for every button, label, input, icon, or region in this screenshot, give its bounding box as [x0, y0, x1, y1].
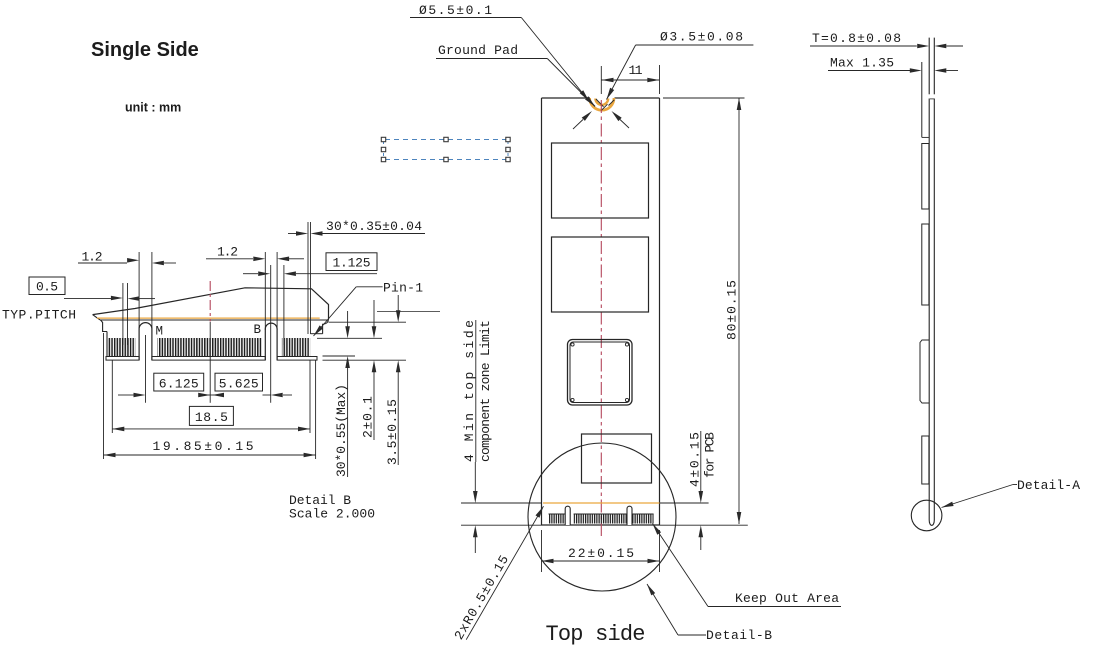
svg-text:18.5: 18.5	[195, 410, 228, 425]
svg-text:30*0.55(Max): 30*0.55(Max)	[334, 384, 349, 477]
svg-text:Detail-A: Detail-A	[1017, 478, 1080, 493]
svg-text:unit : mm: unit : mm	[125, 101, 181, 115]
svg-text:1.2: 1.2	[82, 250, 103, 265]
svg-text:5.625: 5.625	[219, 377, 259, 392]
svg-text:1.125: 1.125	[333, 256, 371, 271]
svg-text:Max 1.35: Max 1.35	[830, 56, 894, 71]
svg-text:Ø5.5±0.1: Ø5.5±0.1	[419, 3, 492, 18]
svg-text:2±0.1: 2±0.1	[361, 396, 376, 438]
svg-text:for PCB: for PCB	[703, 432, 718, 478]
svg-text:80±0.15: 80±0.15	[724, 280, 739, 340]
svg-text:30*0.35±0.04: 30*0.35±0.04	[326, 219, 422, 234]
svg-text:Keep Out Area: Keep Out Area	[735, 591, 839, 606]
svg-text:TYP.PITCH: TYP.PITCH	[2, 308, 76, 323]
svg-text:Top side: Top side	[546, 622, 646, 647]
svg-text:Pin-1: Pin-1	[383, 281, 423, 296]
svg-text:11: 11	[629, 63, 643, 78]
svg-text:0.5: 0.5	[36, 280, 58, 295]
svg-text:Single Side: Single Side	[91, 39, 199, 61]
svg-text:Scale 2.000: Scale 2.000	[289, 507, 375, 522]
svg-text:Ø3.5±0.08: Ø3.5±0.08	[660, 30, 743, 45]
svg-text:T=0.8±0.08: T=0.8±0.08	[812, 31, 901, 46]
svg-text:22±0.15: 22±0.15	[568, 546, 634, 561]
svg-text:1.2: 1.2	[217, 245, 238, 260]
svg-text:6.125: 6.125	[159, 377, 199, 392]
svg-text:B: B	[254, 323, 262, 337]
svg-text:Detail-B: Detail-B	[706, 628, 772, 643]
svg-text:M: M	[156, 325, 164, 339]
svg-text:component zone Limit: component zone Limit	[478, 320, 493, 462]
svg-text:3.5±0.15: 3.5±0.15	[385, 399, 400, 465]
svg-text:Ground Pad: Ground Pad	[438, 43, 518, 58]
